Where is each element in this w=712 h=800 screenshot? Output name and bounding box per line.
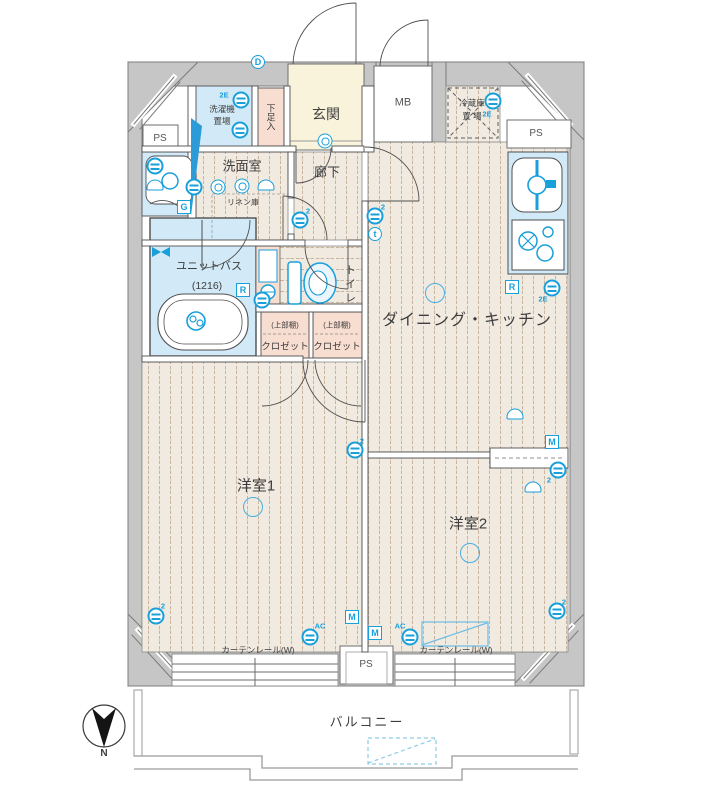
outlet-icon	[367, 208, 384, 225]
ceiling-light-icon	[425, 283, 445, 303]
fixture-tag-label: 2E	[538, 295, 547, 304]
fixture-tag-label: 2	[562, 598, 566, 607]
ceiling-light-icon	[460, 543, 480, 563]
equipment-badge: R	[236, 283, 250, 297]
shoe-box-area	[256, 88, 284, 146]
switch-icon	[318, 134, 333, 149]
fixture-tag-label: 2	[547, 476, 551, 485]
fixture-tag-label: AC	[395, 622, 406, 631]
tv-outlet-icon	[147, 180, 164, 191]
round-terminal-icon: D	[251, 55, 265, 69]
meter-box	[374, 66, 432, 142]
fixture-tag-label: 2E	[219, 91, 228, 100]
equipment-badge: R	[505, 280, 519, 294]
closet2-area	[313, 312, 362, 358]
fixture-tag-label: AC	[315, 622, 326, 631]
equipment-badge: M	[545, 435, 559, 449]
ps-top-right-box	[507, 120, 571, 148]
tv-outlet-icon	[525, 482, 542, 493]
fixture-tag-label: 2E	[482, 110, 491, 119]
compass	[83, 705, 125, 747]
round-terminal-icon: t	[368, 227, 382, 241]
outlet-icon	[254, 292, 271, 309]
tv-outlet-icon	[258, 180, 275, 191]
outlet-icon	[302, 629, 319, 646]
tv-outlet-icon	[507, 409, 524, 420]
outlet-icon	[186, 179, 203, 196]
ceiling-light-icon	[243, 497, 263, 517]
floorplan-page: 玄関 MB 下足入 洗濯機 置場 冷蔵庫 置 場 PS PS PS 洗面室 廊下…	[0, 0, 712, 800]
switch-icon	[211, 180, 226, 195]
fixture-tag-label: 2	[360, 437, 364, 446]
outlet-icon	[485, 93, 502, 110]
floors	[142, 86, 568, 652]
outlet-icon	[402, 629, 419, 646]
equipment-badge: M	[368, 626, 382, 640]
balcony	[134, 690, 578, 780]
outlet-icon	[233, 92, 250, 109]
outlet-icon	[550, 462, 567, 479]
equipment-badge: G	[177, 200, 191, 214]
floorplan-drawing	[0, 0, 712, 800]
outlet-icon	[147, 158, 164, 175]
outlet-icon	[292, 212, 309, 229]
switch-icon	[235, 179, 250, 194]
closet1-area	[261, 312, 310, 358]
fixture-tag-label: 2	[161, 602, 165, 611]
balcony-ac-box	[368, 738, 436, 764]
equipment-badge: M	[345, 610, 359, 624]
outlet-icon	[232, 122, 249, 139]
